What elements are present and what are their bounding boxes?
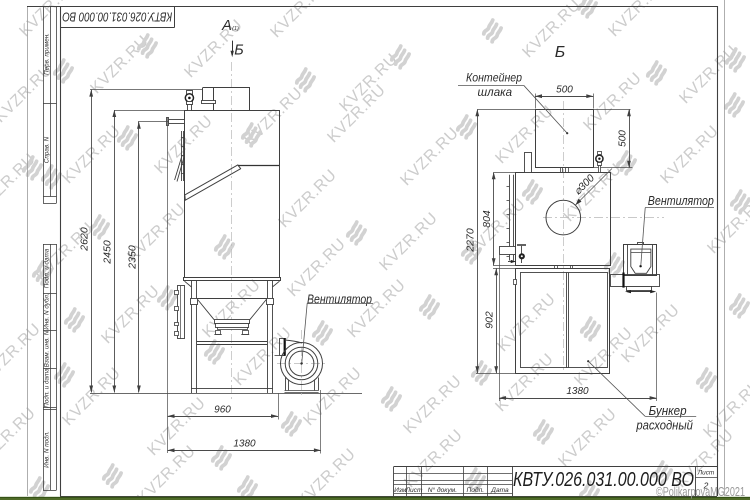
svg-text:2350: 2350 [126,245,138,270]
svg-text:Инв. N подл.: Инв. N подл. [42,431,50,468]
svg-text:Лист: Лист [405,487,423,494]
svg-text:960: 960 [214,405,231,416]
svg-text:Инв. N дубл.: Инв. N дубл. [42,293,50,329]
svg-text:Лист: Лист [697,470,715,477]
svg-text:Перв. примен.: Перв. примен. [43,33,50,75]
svg-text:Подп.: Подп. [467,486,485,494]
svg-text:1380: 1380 [566,386,589,397]
svg-text:Подп. и дата: Подп. и дата [42,248,50,288]
svg-text:500: 500 [556,84,573,95]
svg-text:А: А [221,18,232,34]
svg-text:902: 902 [484,311,496,329]
svg-text:804: 804 [481,210,493,228]
svg-text:Справ. N: Справ. N [43,136,50,163]
svg-text:шлака: шлака [478,87,513,99]
svg-text:расходный: расходный [635,419,692,433]
svg-text:Вентилятор: Вентилятор [307,293,372,307]
svg-text:Вентилятор: Вентилятор [648,194,714,208]
svg-text:Подп. и дата: Подп. и дата [42,368,50,408]
svg-text:2620: 2620 [79,227,91,252]
svg-text:2270: 2270 [465,228,477,253]
svg-text:1380: 1380 [233,439,256,450]
svg-text:©PolikarpovaMG2021: ©PolikarpovaMG2021 [656,484,745,499]
svg-text:КВТУ.026.031.00.000 ВО: КВТУ.026.031.00.000 ВО [62,9,172,23]
svg-text:Взам. инв. N: Взам. инв. N [43,330,50,367]
svg-text:500: 500 [617,130,628,147]
svg-text:N° докум.: N° докум. [428,486,457,494]
svg-text:Бункер: Бункер [649,404,687,418]
svg-text:2450: 2450 [102,240,114,265]
svg-text:Дата: Дата [490,487,509,494]
svg-text:Контейнер: Контейнер [466,73,523,85]
svg-text:(1): (1) [232,26,239,32]
svg-text:Б: Б [555,44,565,61]
svg-text:Б: Б [234,43,243,59]
